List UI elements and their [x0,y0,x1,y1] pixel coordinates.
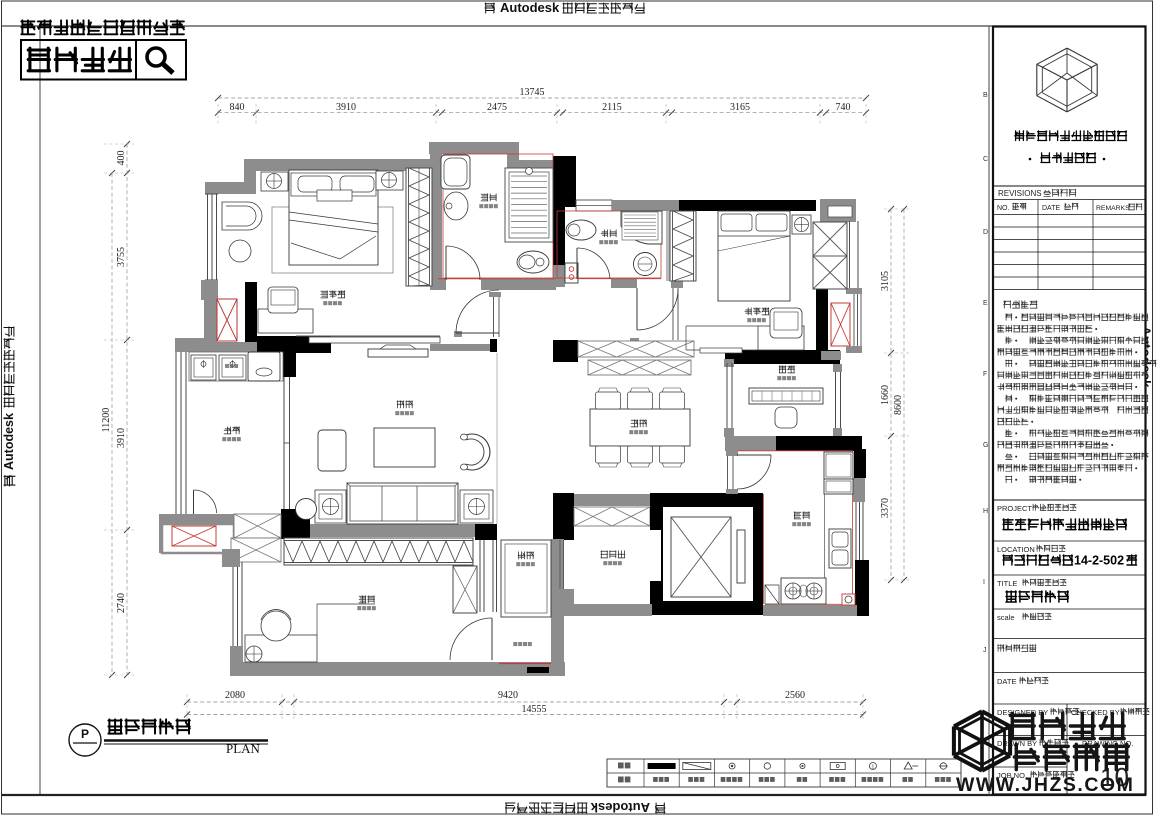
svg-text:14555: 14555 [522,704,547,715]
svg-text:E: E [983,300,988,307]
svg-text:9420: 9420 [498,690,518,701]
svg-text:DATE: DATE [1042,205,1060,212]
svg-text:scale: scale [997,613,1015,622]
svg-text:3910: 3910 [116,428,127,448]
svg-text:I: I [983,579,985,586]
svg-text:14-2-502: 14-2-502 [1074,554,1124,568]
svg-text:8600: 8600 [893,395,904,415]
svg-text:DATE: DATE [997,677,1016,686]
svg-text:D: D [983,229,988,236]
svg-text:3755: 3755 [116,247,127,267]
svg-text:NO.: NO. [997,205,1010,212]
svg-text:840: 840 [230,102,245,113]
svg-text:G: G [983,442,988,449]
svg-text:Autodesk: Autodesk [590,800,650,815]
svg-text:LOCATION: LOCATION [997,545,1035,554]
svg-text:WWW.JHZS.COM: WWW.JHZS.COM [956,774,1134,796]
svg-text:3165: 3165 [730,102,750,113]
svg-text:2560: 2560 [785,690,805,701]
svg-text:2475: 2475 [487,102,507,113]
svg-text:1660: 1660 [880,385,891,405]
svg-text:3105: 3105 [880,271,891,291]
svg-text:13745: 13745 [520,87,545,98]
svg-text:P: P [81,727,89,741]
svg-text:3370: 3370 [880,498,891,518]
svg-text:3910: 3910 [336,102,356,113]
svg-text:400: 400 [116,151,127,166]
svg-text:REVISIONS: REVISIONS [998,189,1042,198]
svg-text:Autodesk: Autodesk [2,413,16,470]
svg-text:11200: 11200 [101,408,112,433]
svg-text:F: F [983,371,987,378]
svg-text:J: J [983,647,987,654]
svg-text:C: C [983,156,988,163]
svg-text:B: B [983,92,988,99]
svg-text:REMARKS: REMARKS [1096,205,1130,212]
svg-text:2740: 2740 [116,593,127,613]
svg-text:Autodesk: Autodesk [500,0,560,15]
svg-text:740: 740 [836,102,851,113]
svg-text:1: 1 [872,765,875,771]
svg-text:2115: 2115 [602,102,622,113]
svg-text:PROJECT: PROJECT [997,504,1032,513]
svg-text:TITLE: TITLE [997,579,1017,588]
svg-text:H: H [983,508,988,515]
svg-text:2080: 2080 [225,690,245,701]
svg-text:PLAN: PLAN [226,741,261,756]
